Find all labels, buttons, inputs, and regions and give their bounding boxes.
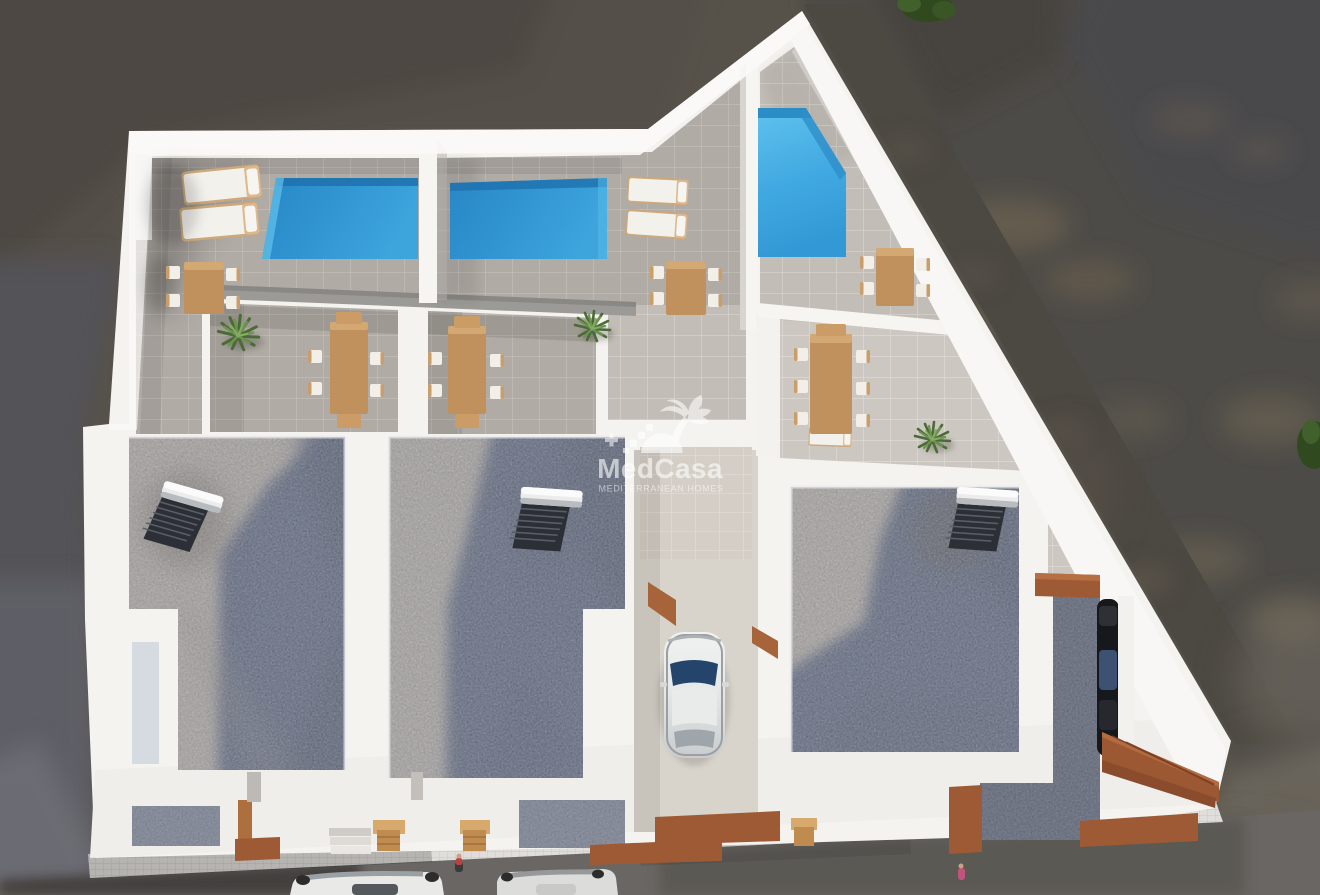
svg-text:MedCasa: MedCasa [597,453,723,484]
svg-text:MEDITERRANEAN HOMES: MEDITERRANEAN HOMES [599,484,724,494]
